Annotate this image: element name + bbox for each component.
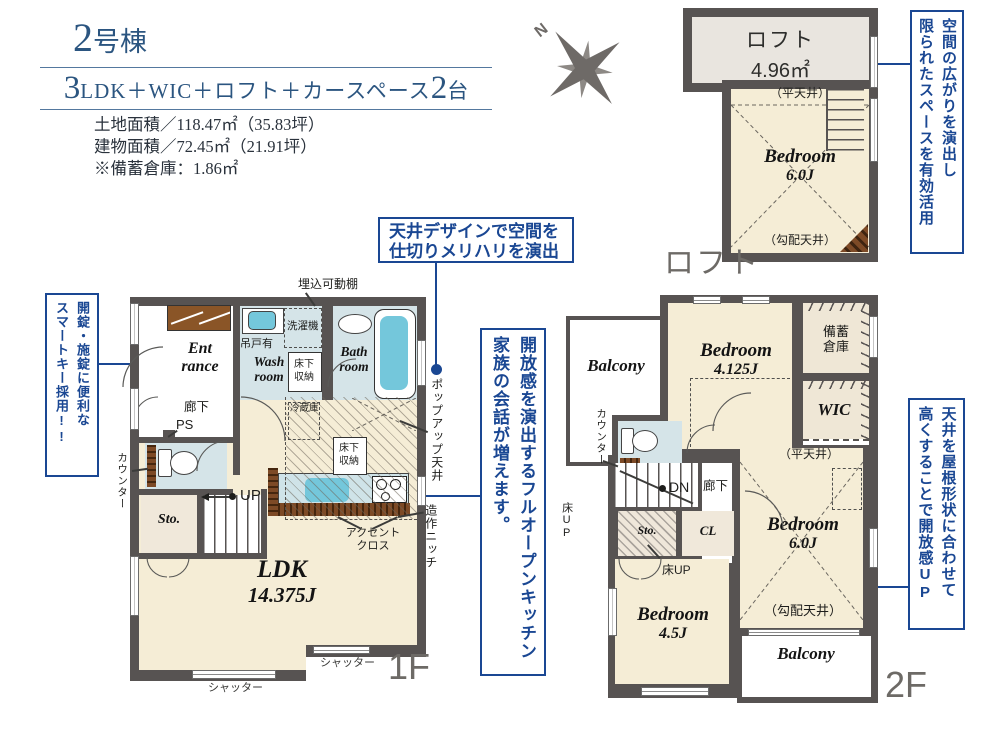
hallway-label: 廊下 — [703, 479, 728, 493]
door-arc — [146, 556, 168, 578]
window — [693, 296, 721, 304]
bathtub-water — [380, 316, 408, 390]
underfloor-line2: 収納 — [294, 372, 314, 384]
storage-label: Sto. — [628, 524, 666, 537]
stock-line2: 倉庫 — [803, 340, 869, 355]
closet-ticks — [803, 303, 869, 311]
door-arc — [168, 556, 190, 578]
building-area: 建物面積／72.45㎡（21.91坪） — [94, 136, 324, 158]
door-arc — [196, 440, 228, 472]
ldk-floor — [139, 645, 306, 670]
accent-cross-label: アクセント クロス — [322, 527, 424, 552]
header-rule-top — [40, 67, 492, 68]
underfloor-line1: 床下 — [339, 443, 359, 455]
bedroom1-area: 4.125J — [678, 361, 794, 379]
niche-label: 造作ニッチ — [423, 504, 437, 569]
up-arrow-line — [209, 496, 231, 498]
window — [870, 36, 878, 88]
loft-bedroom-name: Bedroom — [741, 146, 859, 167]
ldk-label: LDK 14.375J — [222, 556, 342, 608]
accent-line2: クロス — [322, 540, 424, 553]
window — [192, 670, 276, 679]
loft-bedroom-label: Bedroom 6.0J — [741, 146, 859, 185]
washer-label: 洗濯機 — [287, 320, 319, 332]
wall — [871, 628, 878, 703]
header-rule-bottom — [40, 109, 492, 110]
shutter-label: シャッター — [208, 682, 263, 695]
loft-room-label: ロフト 4.96㎡ — [692, 24, 869, 83]
land-area: 土地面積／118.47㎡（35.83坪） — [94, 114, 324, 136]
window — [869, 316, 878, 358]
hallway-label: 廊下 — [184, 400, 209, 414]
underfloor-storage: 床下 収納 — [288, 352, 322, 392]
callout-loft-space: 空間の広がりを演出し 限られたスペースを有効活用 — [910, 10, 964, 254]
storage-label: Sto. — [147, 512, 191, 528]
callout-ceiling-design-line1: 天井デザインで空間を — [389, 222, 563, 242]
bedroom1-label: Bedroom 4.125J — [678, 340, 794, 379]
layout-count-rooms: 3 — [64, 70, 81, 106]
bath-counter — [338, 314, 372, 334]
balcony-label: Balcony — [578, 356, 654, 375]
callout-smart-key: 開錠・施錠に便利な スマートキー採用!! — [45, 293, 99, 477]
callout-roof-ceiling: 天井を屋根形状に合わせて 高くすることで開放感UP — [908, 398, 965, 630]
bedroom2-label: Bedroom 4.5J — [626, 604, 720, 643]
wall — [233, 297, 240, 475]
f1-floor-label: 1F — [388, 646, 430, 688]
callout-ceiling-design: 天井デザインで空間を 仕切りメリハリを演出 — [378, 217, 574, 263]
loft-room-area: 4.96㎡ — [692, 54, 869, 83]
window — [417, 340, 426, 386]
up-label: UP — [240, 487, 261, 504]
page-title: 2号棟 — [73, 14, 147, 61]
callout-loft-space-col2: 限られたスペースを有効活用 — [915, 18, 936, 246]
compass-icon — [518, 2, 648, 133]
entrance-line1: Ent — [158, 340, 242, 358]
up-arrowhead — [201, 493, 209, 501]
door-arc — [122, 346, 164, 388]
callout-open-kitchen: 開放感を演出するフルオープンキッチン 家族の会話が増えます。 — [480, 328, 546, 676]
loft-floor-label: ロフト — [664, 238, 760, 282]
bedroom3-area: 6.0J — [750, 535, 856, 553]
callout-smart-key-col1: 開錠・施錠に便利な — [73, 301, 92, 469]
door-arc — [640, 558, 662, 580]
bath-room-line1: Bath — [332, 344, 376, 359]
entrance-closet — [167, 305, 231, 331]
vanity-sink — [248, 311, 276, 330]
layout-count-cars: 2 — [431, 70, 448, 106]
window — [641, 687, 709, 696]
door-arc — [744, 490, 784, 530]
door-arc — [240, 396, 286, 442]
layout-unit: 台 — [447, 79, 468, 103]
floor-up-label: 床UP — [560, 502, 573, 540]
ps-label: PS — [176, 418, 193, 433]
window — [130, 303, 139, 345]
counter-label: カウンター — [116, 452, 128, 510]
callout-roof-ceiling-col2: 高くすることで開放感UP — [915, 406, 936, 622]
window — [742, 296, 770, 304]
callout-loft-space-col1: 空間の広がりを演出し — [938, 18, 959, 246]
toilet-bowl — [632, 430, 658, 452]
entrance-line2: rance — [158, 358, 242, 376]
entrance-label: Ent rance — [158, 340, 242, 376]
dn-label: DN — [669, 479, 689, 495]
callout-roof-ceiling-col1: 天井を屋根形状に合わせて — [938, 406, 959, 622]
wic-label: WIC — [803, 400, 865, 419]
building-number: 2 — [73, 15, 93, 60]
window — [869, 528, 878, 568]
popup-ceiling-label: ポップアップ天井 — [429, 378, 443, 482]
shutter-label: シャッター — [320, 657, 375, 670]
floor-up-label: 床UP — [662, 564, 691, 578]
slope-ceiling-label: （勾配天井） — [752, 234, 848, 248]
wall — [737, 697, 878, 703]
window — [130, 556, 139, 616]
balcony2-label: Balcony — [764, 644, 848, 663]
counter-label: カウンター — [595, 408, 607, 466]
closet-ticks — [803, 381, 869, 389]
door-arc — [712, 392, 752, 432]
layout-text: LDK＋WIC＋ロフト＋カースペース — [80, 79, 430, 103]
dn-dot — [659, 485, 666, 492]
toilet-counter — [147, 445, 156, 487]
callout-open-kitchen-col2: 家族の会話が増えます。 — [487, 336, 512, 668]
stock-line1: 備蓄 — [803, 325, 869, 340]
underfloor-line1: 床下 — [294, 359, 314, 371]
ldk-area: 14.375J — [222, 584, 342, 608]
layout-summary: 3LDK＋WIC＋ロフト＋カースペース2台 — [40, 70, 492, 107]
hanging-cupboard-label: 吊戸有 — [240, 338, 273, 351]
callout-smart-key-col2: スマートキー採用!! — [52, 301, 71, 469]
loft-room-name: ロフト — [692, 24, 869, 54]
flat-ceiling-label: （平天井） — [764, 448, 854, 462]
wall — [261, 489, 267, 555]
roof-storage-mark — [832, 468, 862, 510]
leader-dot-ceiling-design — [431, 364, 442, 375]
floor-plan-sheet: 2号棟 3LDK＋WIC＋ロフト＋カースペース2台 土地面積／118.47㎡（3… — [0, 0, 1000, 749]
callout-ceiling-design-line2: 仕切りメリハリを演出 — [389, 242, 563, 262]
area-info: 土地面積／118.47㎡（35.83坪） 建物面積／72.45㎡（21.91坪）… — [94, 114, 324, 180]
underfloor-storage: 床下 収納 — [333, 437, 367, 475]
recessed-shelf-label: 埋込可動棚 — [298, 278, 358, 292]
window — [870, 98, 878, 162]
leader-ceiling-design — [435, 263, 437, 366]
callout-open-kitchen-col1: 開放感を演出するフルオープンキッチン — [514, 336, 539, 668]
underfloor-line2: 収納 — [339, 456, 359, 468]
building-suffix: 号棟 — [93, 27, 147, 57]
accent-wall — [268, 468, 278, 516]
door-arc — [618, 558, 640, 580]
ldk-name: LDK — [222, 556, 342, 584]
door-arc — [686, 424, 716, 454]
loft-bedroom-area: 6.0J — [741, 167, 859, 185]
stock-storage-label: 備蓄 倉庫 — [803, 325, 869, 355]
window — [313, 646, 370, 654]
closet-label: CL — [688, 524, 728, 539]
window — [130, 388, 139, 430]
window — [748, 629, 860, 636]
closet-divider — [803, 439, 869, 445]
up-dot — [229, 493, 236, 500]
door-arc — [327, 358, 357, 388]
window — [608, 588, 617, 636]
bedroom2-name: Bedroom — [626, 604, 720, 625]
slope-ceiling-label: （勾配天井） — [758, 604, 848, 619]
f2-floor-label: 2F — [885, 664, 927, 706]
bedroom2-area: 4.5J — [626, 625, 720, 643]
window — [417, 476, 426, 506]
storage-note: ※備蓄倉庫：1.86㎡ — [94, 158, 324, 180]
closet-diagonal — [199, 311, 231, 324]
flat-ceiling-label: （平天井） — [752, 87, 848, 101]
bedroom1-name: Bedroom — [678, 340, 794, 361]
toilet-bowl — [170, 451, 198, 475]
